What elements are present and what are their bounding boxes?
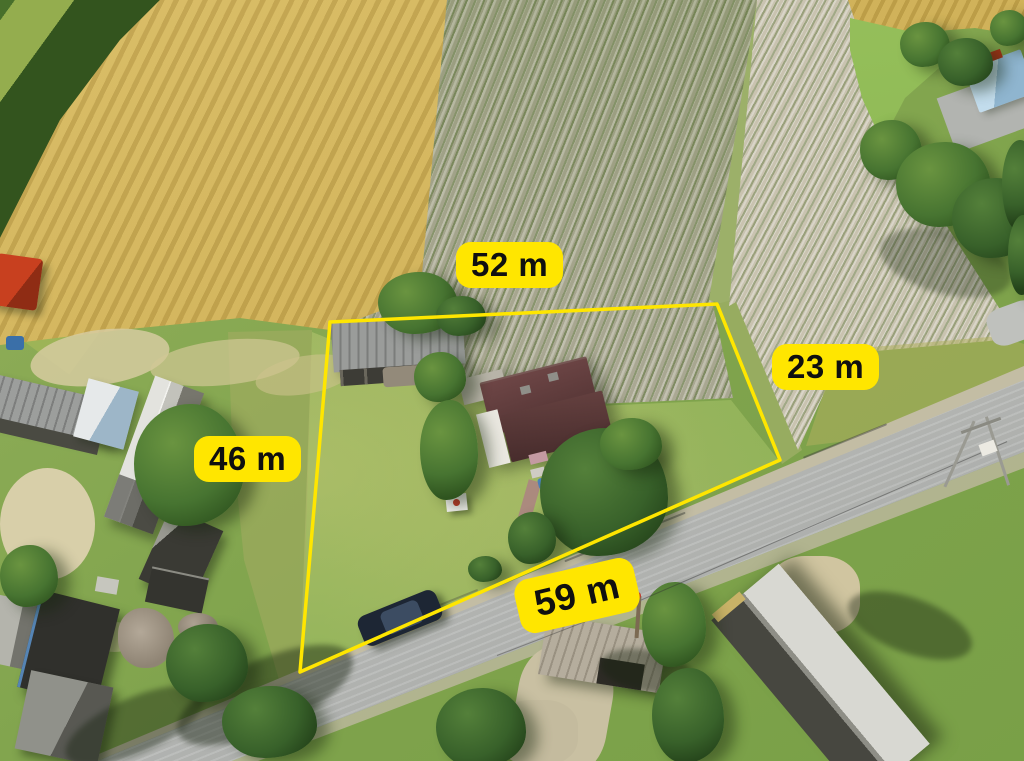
aerial-photo: 52 m 23 m 46 m 59 m (0, 0, 1024, 761)
dimension-label-top: 52 m (456, 242, 563, 288)
dimension-label-right: 23 m (772, 344, 879, 390)
dimension-label-left: 46 m (194, 436, 301, 482)
